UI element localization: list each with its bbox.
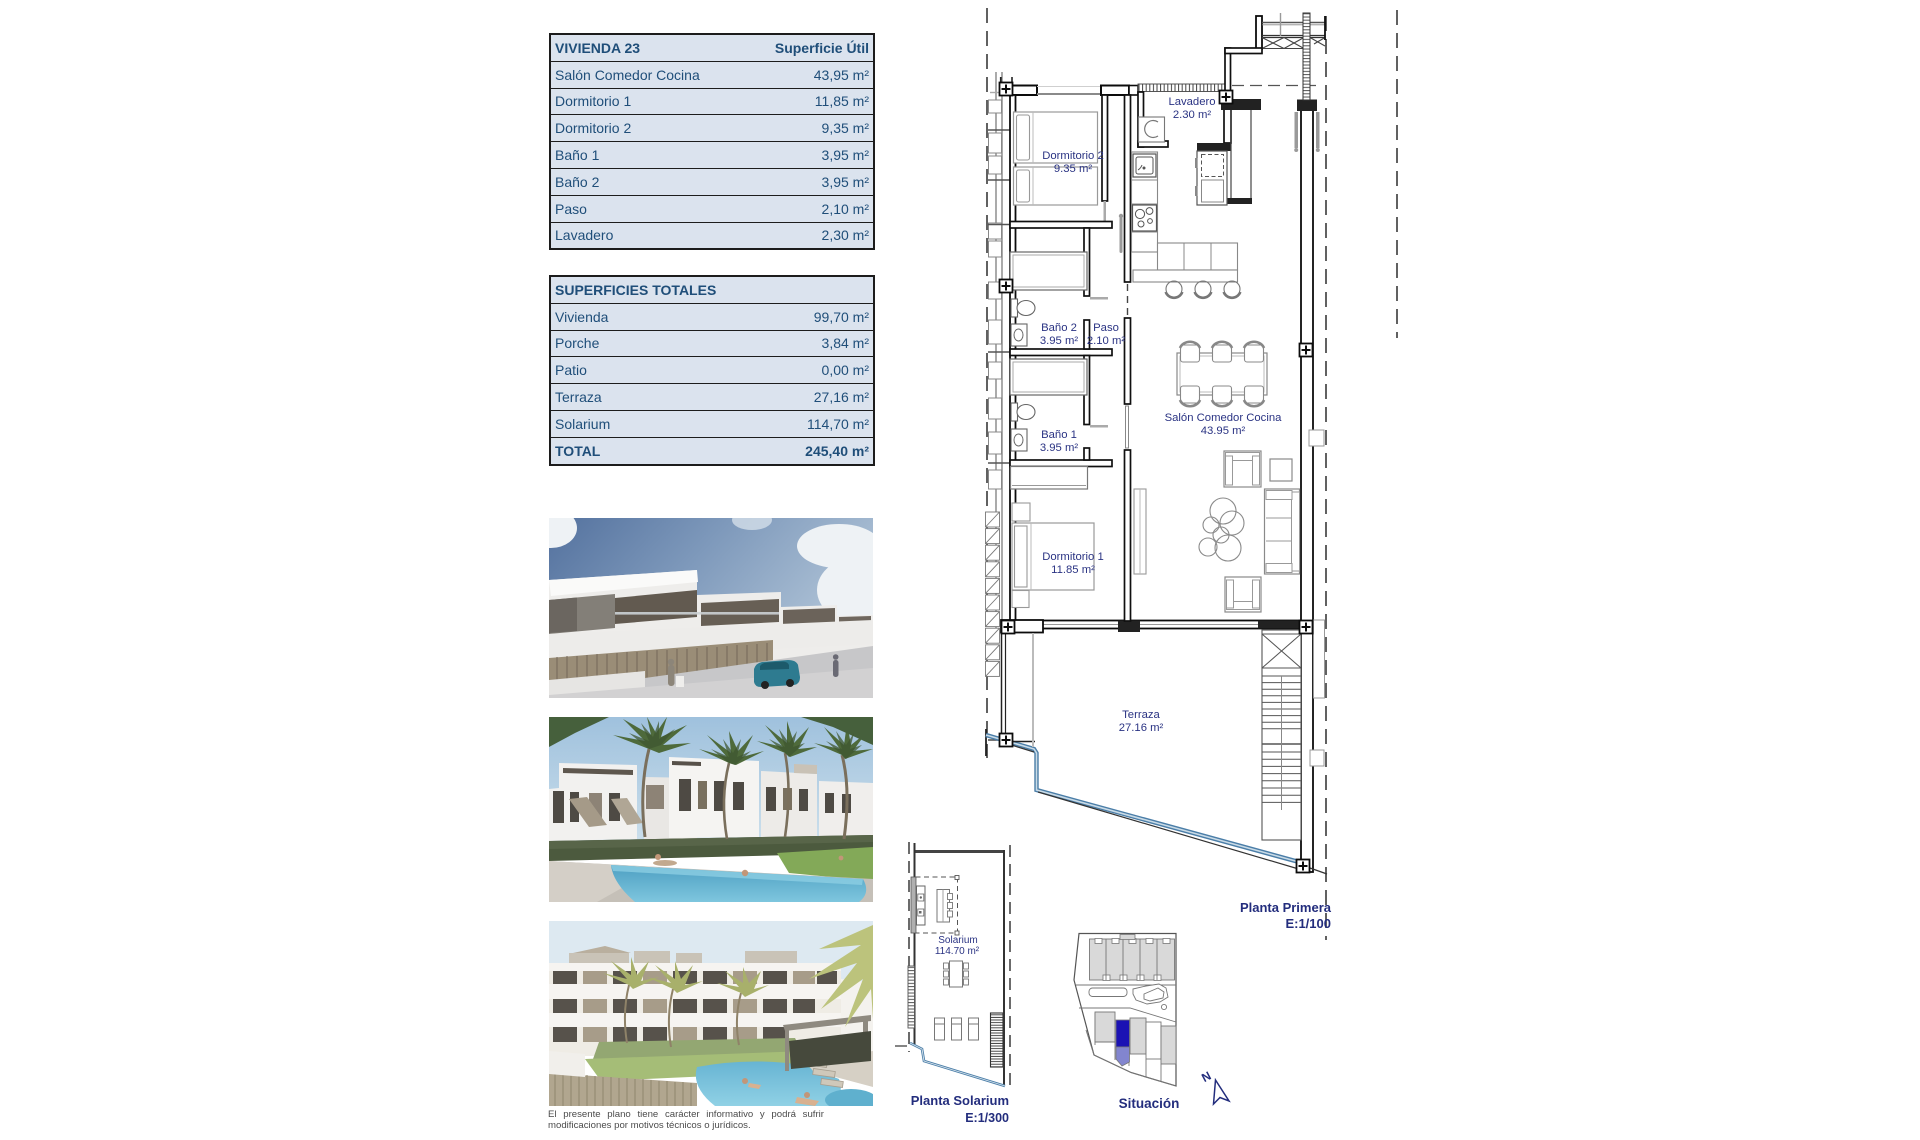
svg-text:Situación: Situación: [1119, 1096, 1180, 1111]
svg-text:Terraza: Terraza: [1122, 709, 1160, 721]
svg-text:27.16 m²: 27.16 m²: [1119, 722, 1164, 734]
svg-text:Solarium: Solarium: [938, 935, 977, 946]
svg-text:2.10 m²: 2.10 m²: [1087, 335, 1126, 347]
svg-text:Paso: Paso: [1093, 322, 1119, 334]
svg-text:2.30 m²: 2.30 m²: [1173, 109, 1212, 121]
svg-text:N: N: [1199, 1069, 1213, 1085]
svg-text:43.95 m²: 43.95 m²: [1201, 425, 1246, 437]
svg-text:Dormitorio 1: Dormitorio 1: [1042, 551, 1104, 563]
svg-text:Baño 1: Baño 1: [1041, 429, 1077, 441]
svg-text:Baño 2: Baño 2: [1041, 322, 1077, 334]
svg-text:11.85 m²: 11.85 m²: [1051, 564, 1095, 576]
svg-text:3.95 m²: 3.95 m²: [1040, 442, 1079, 454]
svg-text:Planta Primera: Planta Primera: [1240, 900, 1332, 915]
svg-text:Lavadero: Lavadero: [1168, 96, 1215, 108]
svg-text:Salón Comedor Cocina: Salón Comedor Cocina: [1165, 412, 1283, 424]
svg-text:114.70 m²: 114.70 m²: [935, 946, 980, 957]
svg-text:3.95 m²: 3.95 m²: [1040, 335, 1079, 347]
svg-text:E:1/100: E:1/100: [1285, 916, 1331, 931]
svg-text:Dormitorio 2: Dormitorio 2: [1042, 150, 1104, 162]
svg-text:E:1/300: E:1/300: [965, 1111, 1009, 1125]
svg-text:Planta Solarium: Planta Solarium: [911, 1093, 1009, 1108]
svg-text:9.35 m²: 9.35 m²: [1054, 163, 1093, 175]
